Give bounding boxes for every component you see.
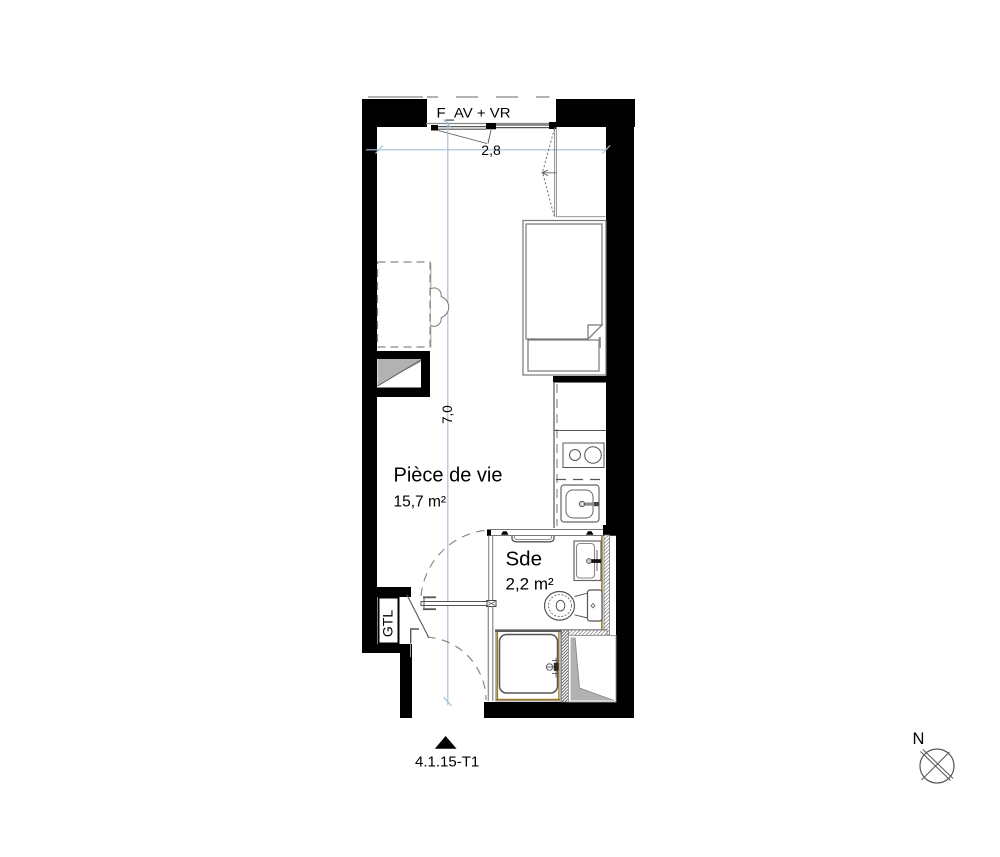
svg-text:N: N — [913, 730, 925, 748]
svg-text:Pièce de vie: Pièce de vie — [394, 465, 503, 487]
svg-text:15,7 m²: 15,7 m² — [394, 494, 447, 511]
svg-text:4.1.15-T1: 4.1.15-T1 — [415, 754, 479, 771]
svg-text:2,8: 2,8 — [481, 142, 501, 158]
svg-text:Sde: Sde — [506, 548, 542, 571]
svg-text:7,0: 7,0 — [440, 405, 455, 424]
svg-text:2,2 m²: 2,2 m² — [506, 575, 555, 594]
svg-text:GTL: GTL — [380, 610, 396, 637]
svg-text:F_AV + VR: F_AV + VR — [437, 105, 511, 121]
